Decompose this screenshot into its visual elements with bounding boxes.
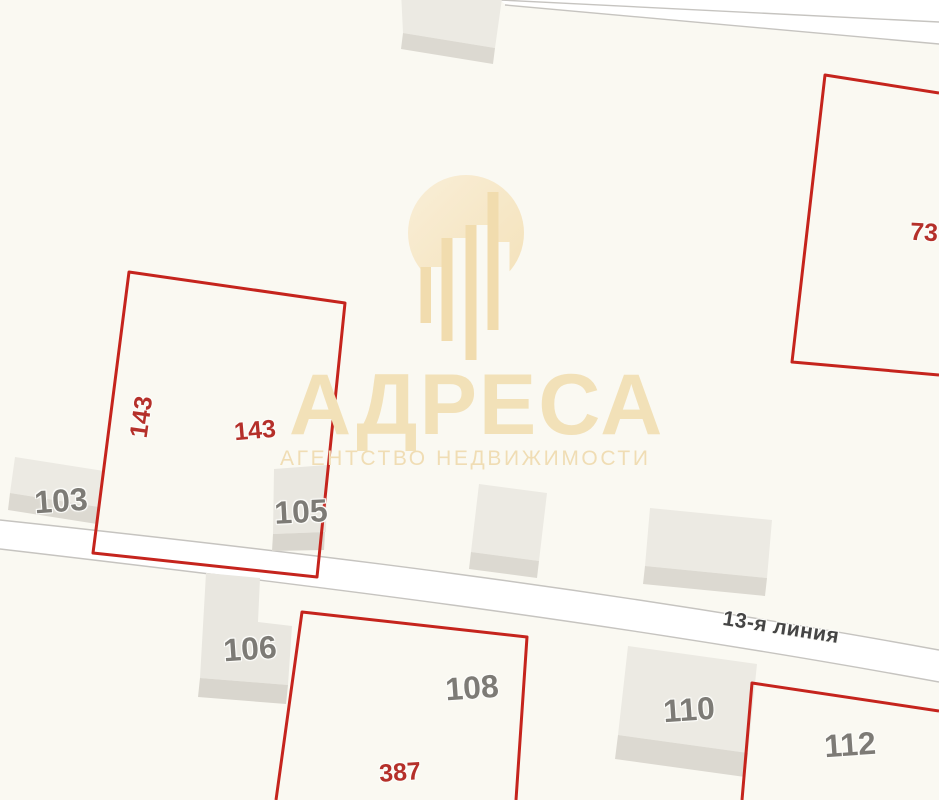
building-label-105: 105: [273, 492, 328, 532]
building-105-side: [272, 532, 325, 551]
parcel-label-387: 387: [378, 757, 422, 789]
map-canvas[interactable]: АДРЕСА АГЕНТСТВО НЕДВИЖИМОСТИ 143 143 38…: [0, 0, 939, 800]
parcel-label-73: 73: [909, 218, 938, 248]
building-north-right: [645, 508, 772, 578]
building-label-112: 112: [823, 725, 877, 766]
watermark-brand-text: АДРЕСА: [289, 362, 664, 448]
building-north-left: [471, 484, 547, 561]
building-label-103: 103: [33, 481, 89, 522]
building-label-110: 110: [662, 690, 716, 731]
parcel-label-143: 143: [233, 415, 277, 448]
watermark-tagline-text: АГЕНТСТВО НЕДВИЖИМОСТИ: [280, 448, 651, 469]
building-label-106: 106: [222, 629, 278, 670]
building-label-108: 108: [444, 668, 500, 709]
road-top-right: [500, 0, 939, 44]
parcel-label-143-side: 143: [125, 394, 160, 439]
road-13-liniya: [0, 520, 939, 682]
building-106: [200, 573, 292, 685]
